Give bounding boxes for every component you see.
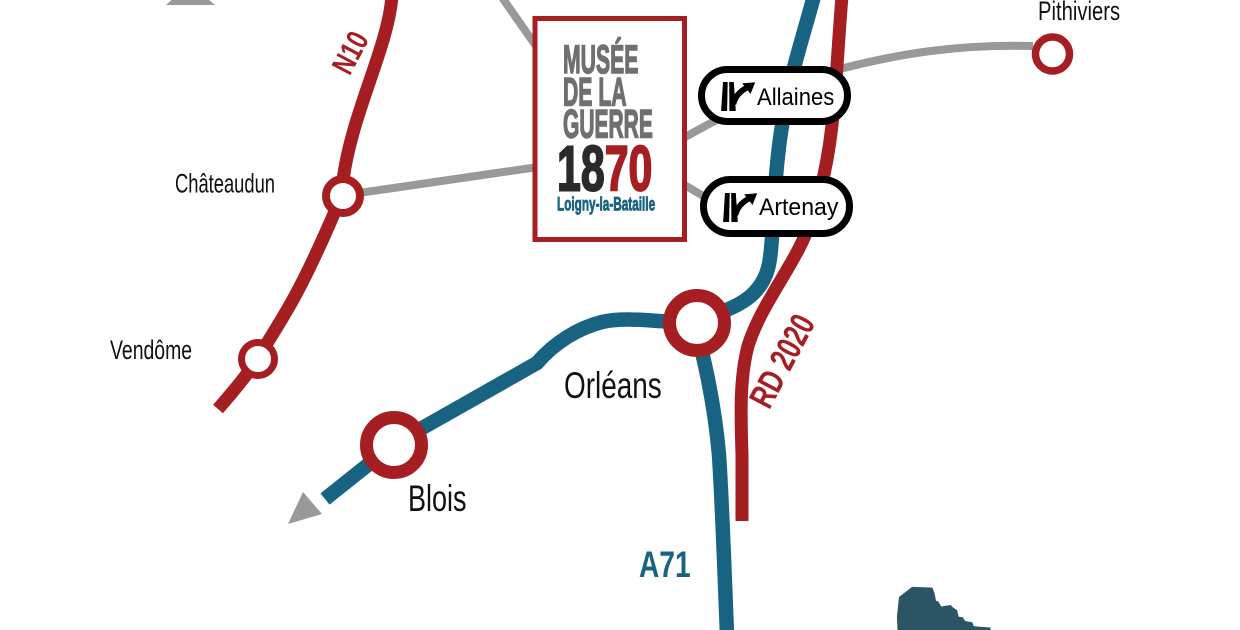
- svg-text:Artenay: Artenay: [759, 194, 839, 221]
- svg-text:Blois: Blois: [408, 478, 467, 519]
- svg-text:Allaines: Allaines: [757, 83, 834, 110]
- svg-text:A71: A71: [639, 543, 691, 585]
- svg-text:Loigny-la-Bataille: Loigny-la-Bataille: [557, 195, 655, 215]
- svg-text:Pithiviers: Pithiviers: [1038, 0, 1120, 27]
- svg-text:Orléans: Orléans: [564, 364, 662, 406]
- svg-text:Châteaudun: Châteaudun: [175, 168, 275, 198]
- svg-text:Vendôme: Vendôme: [110, 335, 192, 365]
